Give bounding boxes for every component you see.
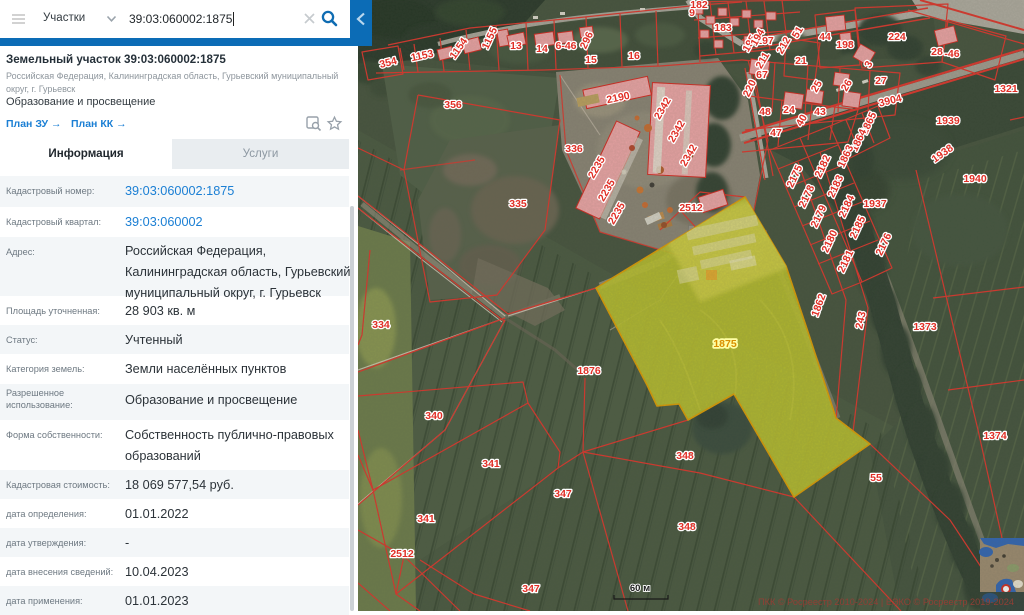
svg-text:334: 334	[372, 319, 390, 331]
svg-text:44: 44	[819, 31, 831, 43]
svg-text:348: 348	[678, 521, 696, 533]
svg-text:340: 340	[425, 410, 443, 422]
svg-text:47: 47	[770, 127, 782, 139]
svg-text:347: 347	[522, 583, 540, 595]
svg-text:14: 14	[536, 43, 548, 55]
svg-text:341: 341	[417, 513, 435, 525]
svg-text:224: 224	[888, 31, 906, 43]
svg-text:341: 341	[482, 458, 500, 470]
svg-text:28: 28	[931, 46, 943, 58]
svg-text:48: 48	[759, 106, 771, 118]
svg-text:ПКК © Росреестр 2010-2024 | ЕЭ: ПКК © Росреестр 2010-2024 | ЕЭКО © Росре…	[758, 597, 1014, 607]
svg-text:1373: 1373	[913, 321, 937, 333]
svg-text:1940: 1940	[963, 173, 987, 185]
svg-text:356: 356	[444, 99, 462, 111]
svg-text:13: 13	[510, 40, 522, 52]
svg-text:335: 335	[509, 198, 527, 210]
svg-text:6-46: 6-46	[555, 40, 576, 52]
svg-text:27: 27	[875, 75, 887, 87]
svg-text:21: 21	[795, 55, 807, 67]
svg-text:2512: 2512	[390, 548, 414, 560]
svg-text:67: 67	[756, 69, 768, 81]
svg-text:336: 336	[565, 143, 583, 155]
svg-text:348: 348	[676, 450, 694, 462]
svg-text:43: 43	[814, 106, 826, 118]
svg-text:2512: 2512	[679, 202, 703, 214]
svg-text:1876: 1876	[577, 365, 601, 377]
svg-text:24: 24	[783, 104, 795, 116]
svg-text:1374: 1374	[983, 430, 1007, 442]
svg-text:1937: 1937	[863, 198, 887, 210]
svg-text:16: 16	[628, 50, 640, 62]
svg-text:60 м: 60 м	[630, 583, 650, 594]
svg-text:183: 183	[714, 22, 732, 34]
svg-text:1939: 1939	[936, 115, 960, 127]
svg-text:1875: 1875	[713, 338, 737, 350]
svg-text:347: 347	[554, 488, 572, 500]
svg-text:182: 182	[690, 0, 708, 11]
svg-text:1321: 1321	[994, 83, 1018, 95]
svg-text:198: 198	[836, 39, 854, 51]
svg-text:55: 55	[870, 472, 882, 484]
svg-text:15: 15	[585, 54, 597, 66]
svg-text:-46: -46	[944, 48, 959, 60]
